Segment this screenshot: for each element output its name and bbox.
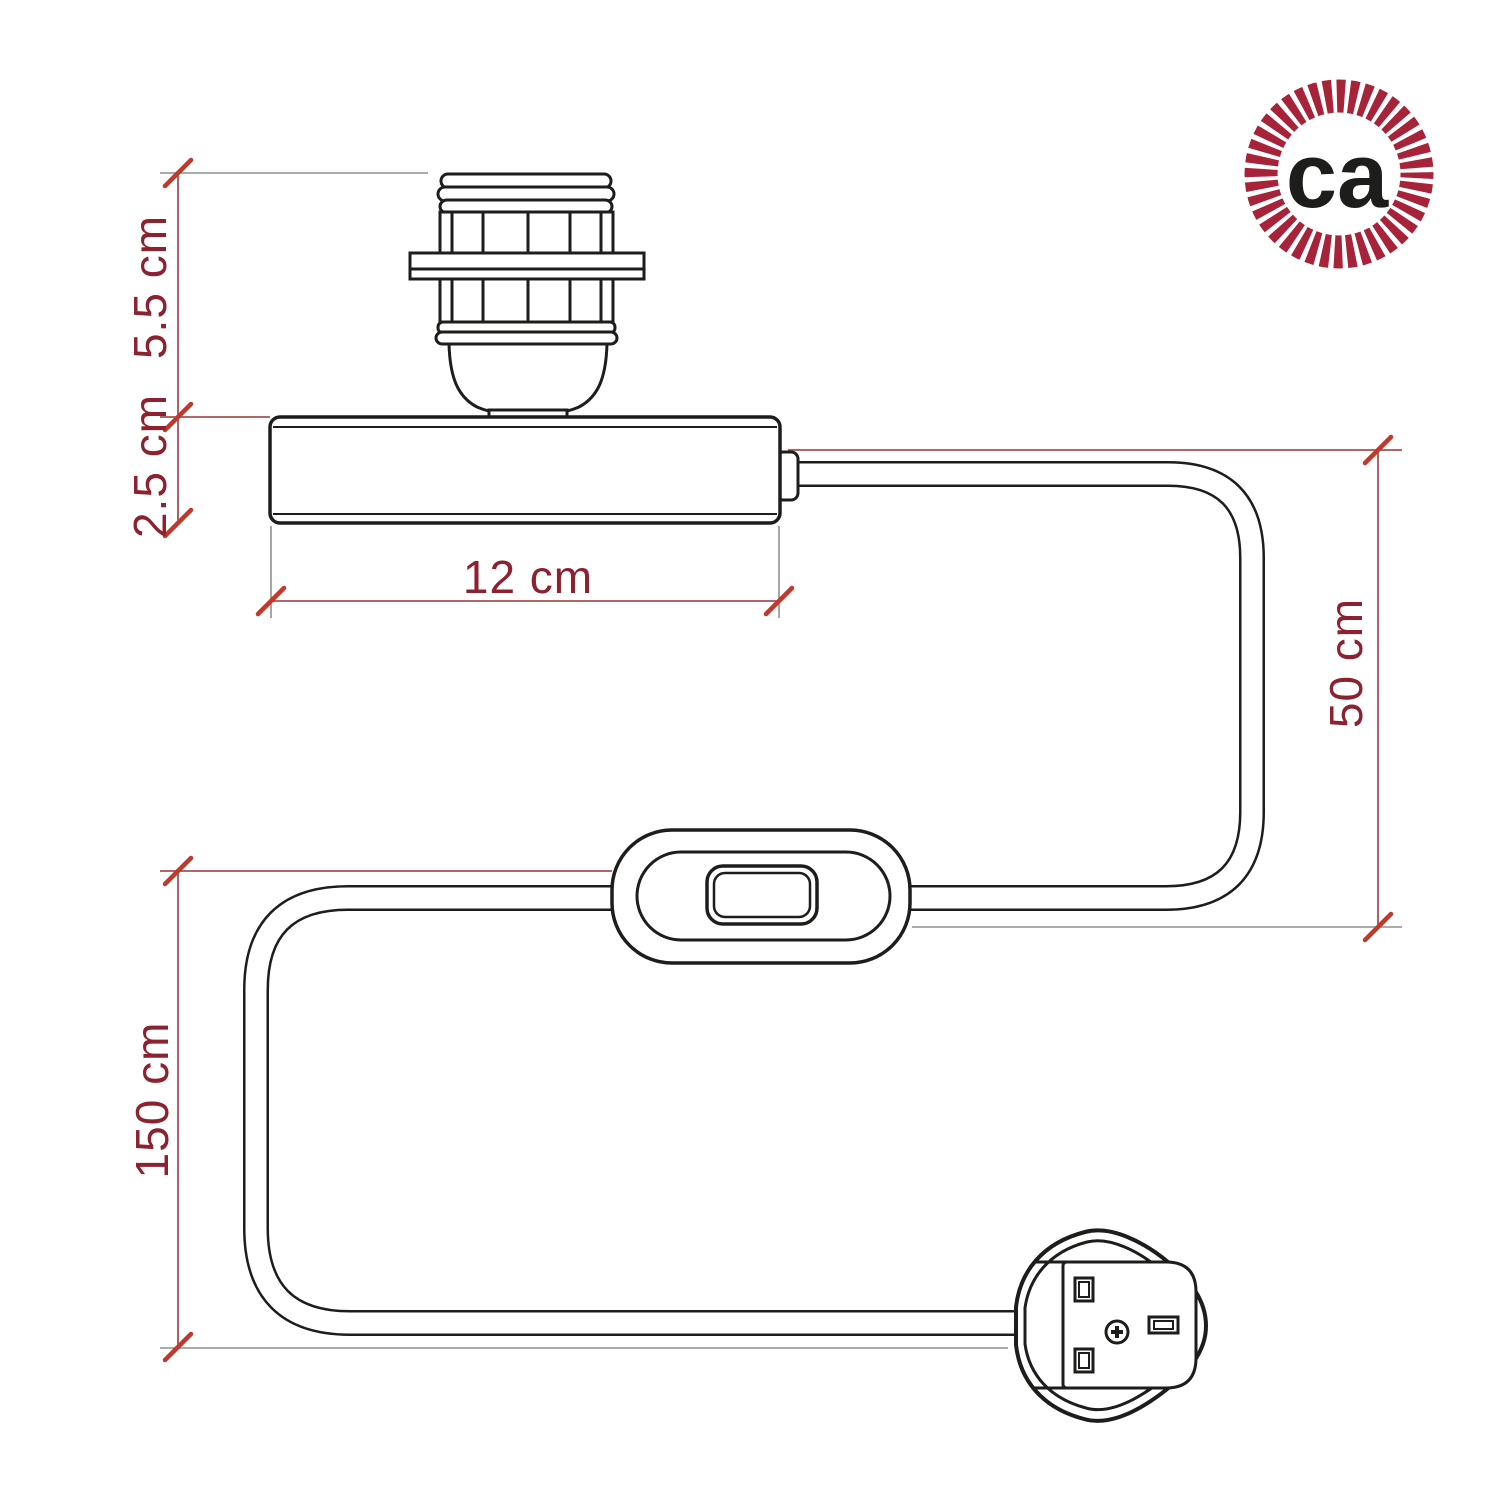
shade-ring bbox=[410, 253, 644, 279]
label-cable-base-to-switch: 50 cm bbox=[1320, 598, 1372, 728]
holder-cup bbox=[449, 344, 607, 412]
extension-lines bbox=[160, 173, 1402, 1348]
dimension-lines bbox=[160, 173, 1402, 1347]
dimension-ticks bbox=[165, 160, 1391, 1360]
switch-button bbox=[707, 866, 817, 924]
dimension-labels: 5.5 cm 2.5 cm 12 cm 50 cm 150 cm bbox=[124, 215, 1372, 1178]
diagram-canvas: 5.5 cm 2.5 cm 12 cm 50 cm 150 cm ca bbox=[0, 0, 1500, 1500]
thread-ridge bbox=[436, 332, 617, 344]
inline-switch bbox=[612, 830, 910, 963]
plug-pin-face bbox=[1063, 1262, 1196, 1388]
lamp-base bbox=[270, 417, 798, 523]
logo-text: ca bbox=[1286, 125, 1389, 227]
product-drawing bbox=[256, 174, 1252, 1421]
label-base-width: 12 cm bbox=[463, 551, 593, 603]
uk-plug bbox=[1016, 1230, 1206, 1420]
label-cable-switch-to-plug: 150 cm bbox=[126, 1022, 178, 1179]
lamp-holder bbox=[410, 174, 644, 418]
label-lamp-holder-height: 5.5 cm bbox=[124, 215, 176, 359]
product-dimension-diagram: 5.5 cm 2.5 cm 12 cm 50 cm 150 cm ca bbox=[0, 0, 1500, 1500]
label-base-height: 2.5 cm bbox=[124, 394, 176, 538]
brand-logo: ca bbox=[1257, 92, 1421, 256]
base-body bbox=[270, 417, 780, 523]
